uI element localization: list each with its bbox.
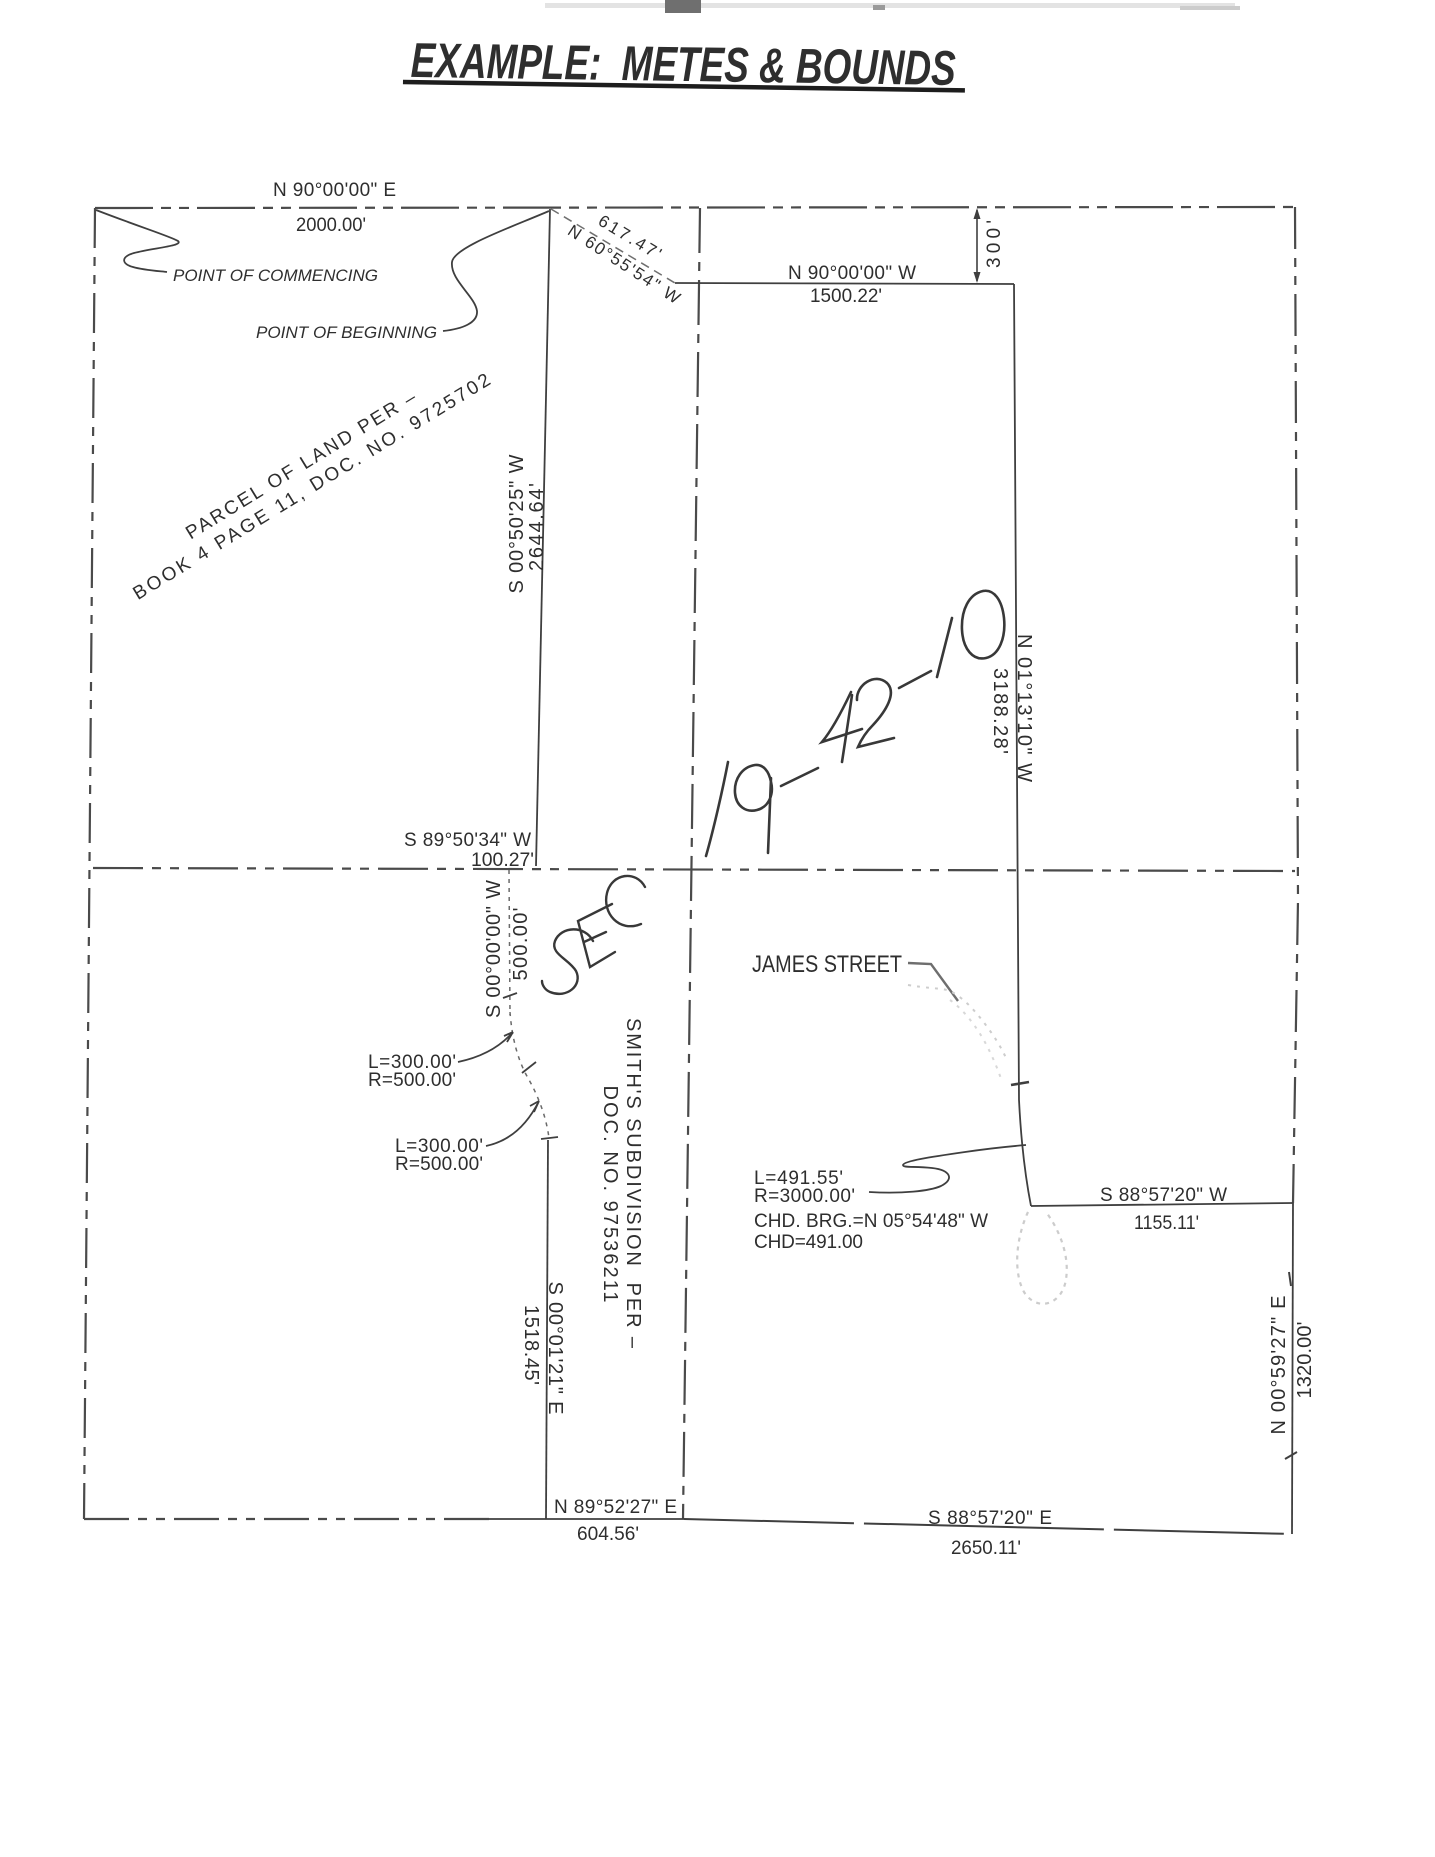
svg-text:500.00': 500.00' bbox=[510, 908, 532, 981]
svg-text:604.56': 604.56' bbox=[577, 1524, 639, 1545]
svg-text:1500.22': 1500.22' bbox=[810, 286, 882, 307]
svg-text:SMITH'S SUBDIVISION PER –: SMITH'S SUBDIVISION PER – bbox=[622, 1018, 644, 1349]
svg-text:S 00°00'00" W: S 00°00'00" W bbox=[483, 880, 505, 1018]
svg-text:2644.64': 2644.64' bbox=[526, 483, 548, 571]
svg-text:POINT OF COMMENCING: POINT OF COMMENCING bbox=[173, 266, 378, 285]
svg-text:100.27': 100.27' bbox=[471, 850, 534, 871]
svg-text:R=3000.00': R=3000.00' bbox=[754, 1186, 855, 1207]
svg-text:N 01°13'10" W: N 01°13'10" W bbox=[1013, 634, 1035, 782]
svg-text:CHD. BRG.=N 05°54'48" W: CHD. BRG.=N 05°54'48" W bbox=[754, 1211, 988, 1232]
svg-text:S 00°01'21" E: S 00°01'21" E bbox=[544, 1282, 566, 1415]
svg-text:CHD=491.00: CHD=491.00 bbox=[754, 1232, 863, 1253]
svg-text:S 88°57'20" E: S 88°57'20" E bbox=[928, 1508, 1052, 1529]
svg-text:1155.11': 1155.11' bbox=[1134, 1213, 1199, 1234]
svg-text:2000.00': 2000.00' bbox=[296, 215, 366, 236]
svg-text:N 90°00'00" W: N 90°00'00" W bbox=[788, 263, 916, 284]
svg-text:1320.00': 1320.00' bbox=[1294, 1322, 1316, 1399]
svg-text:2650.11': 2650.11' bbox=[951, 1538, 1021, 1559]
svg-text:N 90°00'00" E: N 90°00'00" E bbox=[273, 180, 396, 201]
svg-text:3188.28': 3188.28' bbox=[989, 668, 1011, 754]
svg-text:S 88°57'20" W: S 88°57'20" W bbox=[1100, 1185, 1227, 1206]
svg-text:1518.45': 1518.45' bbox=[520, 1305, 542, 1385]
svg-text:S 89°50'34" W: S 89°50'34" W bbox=[404, 830, 531, 851]
svg-text:R=500.00': R=500.00' bbox=[368, 1070, 456, 1091]
svg-text:N 00°59'27" E: N 00°59'27" E bbox=[1268, 1296, 1290, 1435]
svg-text:N 89°52'27" E: N 89°52'27" E bbox=[554, 1497, 677, 1518]
svg-text:JAMES STREET: JAMES STREET bbox=[752, 951, 902, 978]
svg-text:S 00°50'25" W: S 00°50'25" W bbox=[506, 454, 528, 593]
svg-text:R=500.00': R=500.00' bbox=[395, 1154, 483, 1175]
svg-text:POINT OF BEGINNING: POINT OF BEGINNING bbox=[256, 323, 437, 342]
